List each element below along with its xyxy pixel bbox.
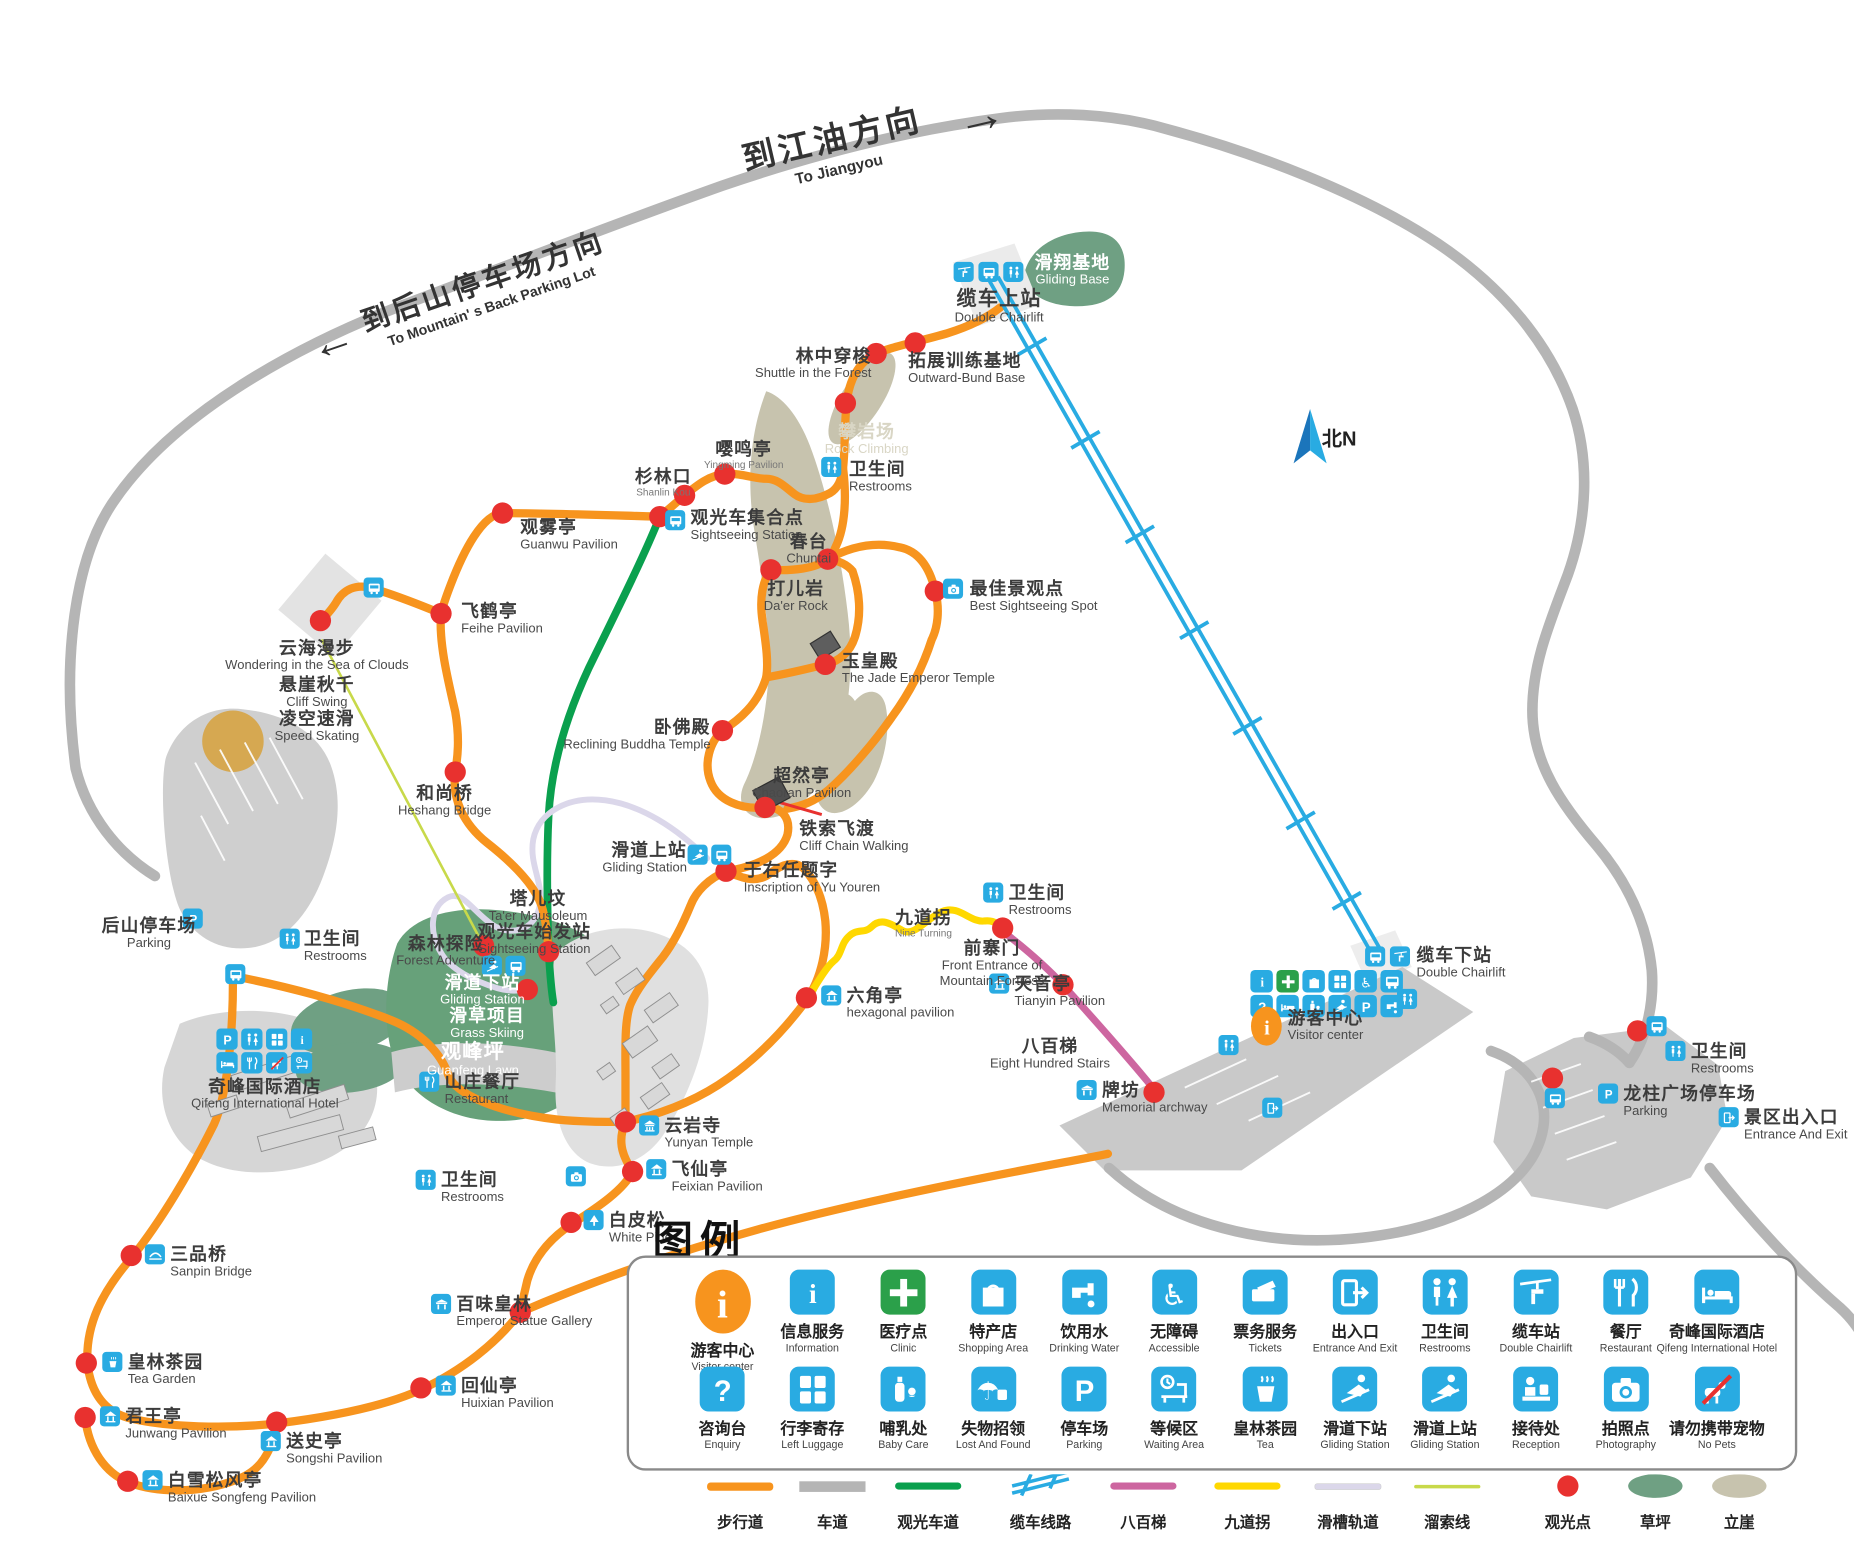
poi-cn-label: 卫生间 [849,460,912,480]
poi-en-label: Forest Adventure [396,954,495,969]
poi-cn-label: 云海漫步 [225,638,408,658]
poi-en-label: Emperor Statue Gallery [456,1315,592,1330]
poi-speed-skating: 凌空速滑Speed Skating [275,709,360,744]
poi-cn-label: 卫生间 [441,1170,504,1190]
sightseeing-point-dot [430,603,451,624]
sightseeing-point-dot [1542,1068,1563,1089]
legend-item-hotel: 奇峰国际酒店Qifeng International Hotel [1656,1270,1777,1354]
poi-cn-label: 于右任题字 [744,861,880,881]
sightseeing-point-dot [121,1245,142,1266]
poi-sea-of-clouds: 云海漫步Wondering in the Sea of Clouds [225,638,408,673]
poi-cn-label: 最佳景观点 [970,579,1098,599]
bus-icon [978,262,998,282]
poi-en-label: Feixian Pavilion [672,1180,763,1195]
svg-text:i: i [717,1283,728,1326]
baby-icon [881,1367,926,1412]
poi-restrooms-east-lot: 卫生间Restrooms [1691,1042,1754,1077]
poi-taer-mausoleum: 塔儿坟Ta'er Mausoleum [489,889,588,924]
lawn-swatch [1620,1474,1691,1505]
sightseeing-point-dot [835,392,856,413]
poi-cn-label: 九道拐 [895,908,952,928]
poi-cn-label: 三品桥 [170,1245,252,1265]
water-icon [1380,995,1402,1017]
nopets-icon [266,1052,287,1073]
poi-yu-youren-inscription: 于右任题字Inscription of Yu Youren [744,861,880,896]
temple-icon [639,1115,659,1135]
legend-item-parking: P停车场Parking [1060,1367,1108,1451]
hotel-icon [216,1052,237,1073]
poi-en-label: Parking [1623,1104,1755,1119]
svg-text:i: i [300,1033,304,1047]
legend-en: Lost And Found [956,1439,1031,1451]
legend-en: Parking [1060,1439,1108,1451]
poi-en-label: Songshi Pavilion [286,1452,382,1467]
legend-line-chute: 滑槽轨道 [1312,1474,1383,1532]
sightseeing-point-dot [410,1377,431,1398]
tea-icon [102,1352,122,1372]
poi-cn-label: 打儿岩 [764,579,828,599]
poi-cn-label: 景区出入口 [1744,1108,1847,1128]
poi-grass-skiing: 滑草项目Grass Skiing [449,1006,525,1041]
poi-en-label: Yunyan Temple [665,1136,754,1151]
legend-en: Qifeng International Hotel [1656,1342,1777,1354]
legend-en: Restrooms [1419,1342,1470,1354]
legend-line-cable: 缆车线路 [1005,1474,1076,1532]
poi-cn-label: 送史亭 [286,1432,382,1452]
poi-cn-label: 嘤鸣亭 [704,440,784,460]
poi-cn-label: 龙柱广场停车场 [1623,1084,1755,1104]
poi-en-label: Entrance And Exit [1744,1128,1847,1143]
legend-line-label: 八百梯 [1108,1510,1179,1532]
poi-cn-label: 攀岩场 [825,422,909,442]
poi-cn-label: 游客中心 [1288,1008,1364,1028]
legend-line-walking: 步行道 [705,1474,776,1532]
svg-text:♿: ♿ [1360,975,1372,990]
poi-cn-label: 滑道上站 [602,841,687,861]
pavilion-icon [261,1431,281,1451]
restrooms-icon [1665,1041,1685,1061]
poi-en-label: Restrooms [441,1191,504,1206]
poi-cn-label: 君王亭 [125,1407,226,1427]
poi-huixian-pavilion: 回仙亭Huixian Pavilion [461,1376,554,1411]
pavilion-icon [646,1159,666,1179]
parking-icon: P [216,1029,237,1050]
legend-line-label: 观光点 [1532,1510,1603,1532]
sightseeing-point-dot [492,502,513,523]
bus-icon [665,510,685,530]
pine-icon [584,1210,604,1230]
shopping-icon [971,1270,1016,1315]
legend-en: Double Chairlift [1500,1342,1573,1354]
legend-item-waiting: 等候区Waiting Area [1144,1367,1204,1451]
poi-en-label: Chaoran Pavilion [752,786,851,801]
poi-cn-label: 卫生间 [304,929,367,949]
poi-cn-label: 森林探险 [396,934,495,954]
svg-text:P: P [1074,1374,1094,1407]
poi-cn-label: 拓展训练基地 [908,351,1025,371]
poi-daer-rock: 打儿岩Da'er Rock [764,579,828,614]
poi-en-label: Eight Hundred Stairs [990,1057,1110,1072]
legend-line-label: 立崖 [1704,1510,1775,1532]
restaurant-icon [1603,1270,1648,1315]
legend-item-water: 饮用水Drinking Water [1049,1270,1119,1354]
shopping-icon [1302,970,1324,992]
poi-cn-label: 铁索飞渡 [799,819,908,839]
legend-cn: 餐厅 [1600,1318,1652,1342]
poi-feixian-pavilion: 飞仙亭Feixian Pavilion [672,1160,763,1195]
poi-cn-label: 悬崖秋千 [279,675,355,695]
legend-line-label: 滑槽轨道 [1312,1510,1383,1532]
camera-icon [943,579,963,599]
poi-en-label: Tianyin Pavilion [1014,995,1105,1010]
poi-yingming-pavilion: 嘤鸣亭Yingming Pavilion [704,440,784,472]
poi-en-label: Tea Garden [128,1373,204,1388]
poi-cn-label: 后山停车场 [102,916,197,936]
tea-icon [1243,1367,1288,1412]
bus-icon [711,845,731,865]
poi-guanwu-pavilion: 观雾亭Guanwu Pavilion [520,518,618,553]
tickets-icon [1243,1270,1288,1315]
compass-label: 北N [1322,422,1357,452]
svg-text:i: i [1264,1017,1270,1039]
svg-text:♿: ♿ [1161,1278,1187,1311]
legend-cn: 特产店 [958,1318,1028,1342]
poi-shanlinkou: 杉林口Shanlin Kou [635,467,692,499]
bus-icon [364,578,384,598]
poi-memorial-archway: 牌坊Memorial archway [1102,1081,1208,1116]
legend-en: Left Luggage [780,1439,844,1451]
bus-icon [1545,1088,1565,1108]
legend-cn: 票务服务 [1233,1318,1297,1342]
bus-icon [1365,946,1385,966]
sightseeing-point-dot [76,1352,97,1373]
poi-en-label: Visitor center [1288,1029,1364,1044]
poi-hexagonal-pavilion: 六角亭hexagonal pavilion [847,986,955,1021]
luggage-icon [266,1029,287,1050]
gold-knoll-area [202,711,263,772]
poi-en-label: Memorial archway [1102,1101,1208,1116]
poi-en-label: Double Chairlift [955,310,1044,325]
cable-swatch [1005,1474,1076,1505]
luggage-icon [1328,970,1350,992]
poi-restrooms-nineturn: 卫生间Restrooms [1009,883,1072,918]
poi-chaoran-pavilion: 超然亭Chaoran Pavilion [752,766,851,801]
poi-cn-label: 缆车上站 [955,287,1044,310]
legend-line-zipline: 溜索线 [1412,1474,1483,1532]
legend-line-stairs: 八百梯 [1108,1474,1179,1532]
legend-cn: 失物招领 [956,1415,1031,1439]
poi-en-label: Grass Skiing [449,1026,525,1041]
restrooms-icon [1422,1270,1467,1315]
legend-item-restaurant: 餐厅Restaurant [1600,1270,1652,1354]
legend-item-restrooms: 卫生间Restrooms [1419,1270,1470,1354]
legend-item-reception: 接待处Reception [1512,1367,1560,1451]
svg-text:P: P [1604,1088,1612,1101]
legend-item-chairlift: 缆车站Double Chairlift [1500,1270,1573,1354]
nineturn-swatch [1212,1474,1283,1505]
poi-en-label: hexagonal pavilion [847,1006,955,1021]
poi-yunyan-temple: 云岩寺Yunyan Temple [665,1116,754,1151]
visitor-icon: i [1251,1007,1282,1046]
bridge-icon [145,1244,165,1264]
legend-en: Waiting Area [1144,1439,1204,1451]
sightseeing-point-dot [622,1161,643,1182]
legend-item-nopets: 请勿携带宠物No Pets [1669,1367,1765,1451]
poi-cn-label: 塔儿坟 [489,889,588,909]
poi-cn-label: 滑草项目 [449,1006,525,1026]
sightseeing-point-dot [992,917,1013,938]
nopets-icon [1694,1367,1739,1412]
restrooms-icon [241,1029,262,1050]
poi-cn-label: 滑道下站 [440,973,525,993]
poi-outward-bund-base: 拓展训练基地Outward-Bund Base [908,351,1025,386]
legend-en: Restaurant [1600,1342,1652,1354]
legend-cn: 拍照点 [1596,1415,1656,1439]
legend-cn: 接待处 [1512,1415,1560,1439]
legend-line-spot: 观光点 [1532,1474,1603,1532]
poi-cn-label: 云岩寺 [665,1116,754,1136]
sightseeing-point-dot [815,654,836,675]
legend-item-clinic: 医疗点Clinic [879,1270,927,1354]
poi-reclining-buddha-temple: 卧佛殿Reclining Buddha Temple [563,718,710,753]
poi-chuntai: 春台Chuntai [786,532,831,567]
legend-cn: 行李寄存 [780,1415,844,1439]
poi-emperor-statue-gallery: 百味皇林Emperor Statue Gallery [456,1295,592,1330]
sightseeing-swatch [893,1474,964,1505]
poi-en-label: Wondering in the Sea of Clouds [225,659,408,674]
lost-icon: ☂ [971,1367,1016,1412]
legend-cn: 卫生间 [1419,1318,1470,1342]
sightseeing-point-dot [712,720,733,741]
poi-restrooms-back-lot: 卫生间Restrooms [304,929,367,964]
poi-en-label: Inscription of Yu Youren [744,881,880,896]
legend-cn: 信息服务 [780,1318,844,1342]
poi-baixue-songfeng-pavilion: 白雪松风亭Baixue Songfeng Pavilion [168,1471,316,1506]
restrooms-icon [821,457,841,477]
poi-en-label: Gliding Station [602,861,687,876]
archway-icon [431,1294,451,1314]
chairlift-icon [1390,946,1410,966]
restrooms-icon [416,1170,436,1190]
sightseeing-point-dot [760,559,781,580]
poi-cn-label: 山庄餐厅 [445,1072,521,1092]
information-icon: i [1250,970,1272,992]
poi-en-label: Baixue Songfeng Pavilion [168,1491,316,1506]
legend-line-label: 缆车线路 [1005,1510,1076,1532]
poi-cn-label: 卫生间 [1691,1042,1754,1062]
poi-rock-climbing: 攀岩场Rock Climbing [825,422,909,457]
legend-line-lawn: 草坪 [1620,1474,1691,1532]
legend-en: Shopping Area [958,1342,1028,1354]
poi-tianyin-pavilion: 天音亭Tianyin Pavilion [1014,974,1105,1009]
poi-cn-label: 杉林口 [635,467,692,487]
road-swatch [797,1474,868,1505]
legend-en: Tea [1233,1439,1297,1451]
legend-item-luggage: 行李寄存Left Luggage [780,1367,844,1451]
svg-text:P: P [223,1033,231,1047]
sightseeing-point-dot [1627,1020,1648,1041]
legend-line-nineturn: 九道拐 [1212,1474,1283,1532]
poi-heshang-bridge: 和尚桥Heshang Bridge [398,784,491,819]
poi-gliding-station-top: 滑道上站Gliding Station [602,841,687,876]
legend-cn: 皇林茶园 [1233,1415,1297,1439]
svg-text:i: i [1260,975,1264,989]
legend-line-label: 九道拐 [1212,1510,1283,1532]
poi-cn-label: 观雾亭 [520,518,618,538]
legend-item-camera: 拍照点Photography [1596,1367,1656,1451]
legend-item-baby: 哺乳处Baby Care [878,1367,928,1451]
reception-icon [1513,1367,1558,1412]
legend-en: Gliding Station [1410,1439,1479,1451]
poi-jade-emperor-temple: 玉皇殿The Jade Emperor Temple [842,651,995,686]
information-icon: i [291,1029,312,1050]
poi-cn-label: 缆车下站 [1417,946,1506,966]
poi-cn-label: 和尚桥 [398,784,491,804]
sightseeing-point-dot [615,1111,636,1132]
poi-en-label: Da'er Rock [764,600,828,615]
legend-line-sightseeing: 观光车道 [893,1474,964,1532]
sightseeing-point-dot [117,1471,138,1492]
poi-cn-label: 林中穿梭 [755,346,871,366]
poi-cn-label: 观光车集合点 [691,508,805,528]
clinic-icon [881,1270,926,1315]
legend-en: Clinic [879,1342,927,1354]
legend-item-question: ?咨询台Enquiry [699,1367,747,1451]
poi-en-label: Feihe Pavilion [461,622,543,637]
sightseeing-point-dot [74,1407,95,1428]
svg-text:i: i [808,1277,816,1308]
gliding-icon [1422,1367,1467,1412]
poi-sanpin-bridge: 三品桥Sanpin Bridge [170,1245,252,1280]
legend-item-tea: 皇林茶园Tea [1233,1367,1297,1451]
legend-line-label: 溜索线 [1412,1510,1483,1532]
sightseeing-point-dot [560,1212,581,1233]
gliding-icon [688,845,708,865]
poi-en-label: Huixian Pavilion [461,1396,554,1411]
poi-cable-top-station: 缆车上站Double Chairlift [955,287,1044,325]
camera-icon [566,1166,586,1186]
legend-en: Reception [1512,1439,1560,1451]
restrooms-icon [280,929,300,949]
legend-item-exit: 出入口Entrance And Exit [1313,1270,1398,1354]
clinic-icon [1276,970,1298,992]
legend-line-label: 车道 [797,1510,868,1532]
poi-en-label: Restrooms [1691,1062,1754,1077]
poi-cn-label: 前寨门 [940,939,1045,959]
spot-swatch [1532,1474,1603,1505]
legend-item-gliding: 滑道下站Gliding Station [1320,1367,1389,1451]
poi-songshi-pavilion: 送史亭Songshi Pavilion [286,1432,382,1467]
poi-junwang-pavilion: 君王亭Junwang Pavilion [125,1407,226,1442]
poi-en-label: Cliff Swing [279,695,355,710]
legend-item-visitor: i游客中心Visitor center [691,1270,755,1373]
legend-cn: 游客中心 [691,1337,755,1361]
poi-en-label: Parking [102,937,197,952]
poi-restrooms-north: 卫生间Restrooms [849,460,912,495]
poi-cn-label: 天音亭 [1014,974,1105,994]
poi-en-label: The Jade Emperor Temple [842,672,995,687]
camera-icon [1603,1367,1648,1412]
parking-icon: P [1062,1367,1107,1412]
legend-line-label: 步行道 [705,1510,776,1532]
poi-en-label: Restrooms [304,950,367,965]
zipline-swatch [1412,1474,1483,1505]
waiting-icon [1152,1367,1197,1412]
luggage-icon [790,1367,835,1412]
legend-cn: 出入口 [1313,1318,1398,1342]
legend-cn: 咨询台 [699,1415,747,1439]
poi-en-label: Qifeng International Hotel [191,1097,339,1112]
poi-cn-label: 白雪松风亭 [168,1471,316,1491]
exit-icon [1262,1098,1282,1118]
sightseeing-point-dot [310,610,331,631]
legend-line-label: 草坪 [1620,1510,1691,1532]
poi-cn-label: 回仙亭 [461,1376,554,1396]
question-icon: ? [700,1367,745,1412]
visitor-icon: i [695,1270,751,1334]
poi-en-label: Shuttle in the Forest [755,367,871,382]
legend-cn: 停车场 [1060,1415,1108,1439]
poi-en-label: Guanwu Pavilion [520,538,618,553]
cliff-swatch [1704,1474,1775,1505]
poi-gliding-base: 滑翔基地Gliding Base [1035,253,1111,288]
legend-line-cliff: 立崖 [1704,1474,1775,1532]
legend-en: Enquiry [699,1439,747,1451]
legend-cn: 哺乳处 [878,1415,928,1439]
poi-en-label: Chuntai [786,552,831,567]
chute-swatch [1312,1474,1383,1505]
legend-line-label: 观光车道 [893,1510,964,1532]
legend-item-accessible: ♿无障碍Accessible [1149,1270,1200,1354]
poi-forest-adventure: 森林探险Forest Adventure [396,934,495,969]
poi-en-label: Reclining Buddha Temple [563,738,710,753]
sightseeing-point-dot [266,1412,287,1433]
poi-cn-label: 牌坊 [1102,1081,1208,1101]
legend-en: Gliding Station [1320,1439,1389,1451]
legend-cn: 请勿携带宠物 [1669,1415,1765,1439]
poi-cn-label: 飞鹤亭 [461,602,543,622]
poi-cn-label: 飞仙亭 [672,1160,763,1180]
exit-icon [1333,1270,1378,1315]
accessible-icon: ♿ [1152,1270,1197,1315]
accessible-icon: ♿ [1354,970,1376,992]
poi-cliff-swing: 悬崖秋千Cliff Swing [279,675,355,710]
poi-en-label: Outward-Bund Base [908,372,1025,387]
legend-en: No Pets [1669,1439,1765,1451]
poi-best-sightseeing: 最佳景观点Best Sightseeing Spot [970,579,1098,614]
poi-shuttle-in-forest: 林中穿梭Shuttle in the Forest [755,346,871,381]
legend-item-gliding: 滑道上站Gliding Station [1410,1367,1479,1451]
legend-cn: 饮用水 [1049,1318,1119,1342]
poi-gliding-station-lower: 滑道下站Gliding Station [440,973,525,1008]
legend-en: Photography [1596,1439,1656,1451]
restrooms-icon [1003,262,1023,282]
chairlift-icon [954,262,974,282]
gliding-icon [1333,1367,1378,1412]
legend-item-information: i信息服务Information [780,1270,844,1354]
legend-en: Information [780,1342,844,1354]
poi-en-label: Sanpin Bridge [170,1265,252,1280]
poi-cn-label: 观峰坪 [427,1040,519,1063]
legend-cn: 奇峰国际酒店 [1656,1318,1777,1342]
waiting-icon [291,1052,312,1073]
poi-cn-label: 超然亭 [752,766,851,786]
bus-icon [225,964,245,984]
poi-cliff-chain-walking: 铁索飞渡Cliff Chain Walking [799,819,908,854]
poi-visitor-center: 游客中心Visitor center [1288,1008,1364,1043]
sightseeing-point-dot [796,987,817,1008]
legend-en: Entrance And Exit [1313,1342,1398,1354]
